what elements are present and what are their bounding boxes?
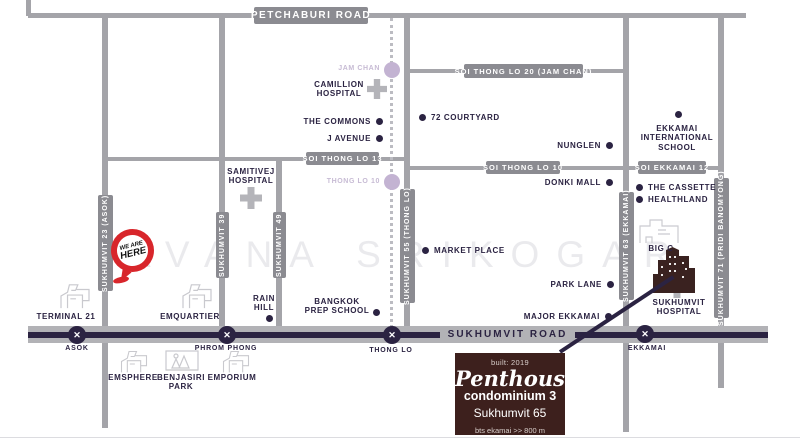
landmark-label: THE CASSETTE [648, 183, 716, 192]
landmark-donki-mall: DONKI MALL [545, 178, 613, 187]
road-label-sukhumvit-55: SUKHUMVIT 55 (THONG LO) [400, 189, 415, 303]
we-are-here-marker: WE ARE HERE [107, 227, 159, 287]
landmark-samitivej-hospital: SAMITIVEJ HOSPITAL [212, 167, 290, 186]
info-project-type: condominium 3 [455, 390, 565, 403]
landmark-label: MARKET PLACE [434, 246, 505, 255]
landmark-emsphere: EMSPHERE [104, 373, 162, 382]
park-icon-benjasiri [165, 350, 199, 374]
hospital-cross-icon [240, 187, 262, 209]
info-box: built: 2019 Penthouse condominium 3 Sukh… [455, 353, 565, 435]
landmark-dot [422, 247, 429, 254]
map-canvas: AVANA SRIKOGAR PETCHABURI ROAD SOI THONG… [0, 0, 800, 443]
landmark-camillion-hospital: CAMILLION HOSPITAL [301, 80, 377, 99]
landmark-label: 72 COURTYARD [431, 113, 500, 122]
landmark-label: J AVENUE [327, 134, 371, 143]
landmark-dot [607, 281, 614, 288]
landmark-big-c: BIG C [640, 244, 682, 253]
landmark-label: PARK LANE [551, 280, 602, 289]
landmark-dot [373, 309, 380, 316]
info-address: Sukhumvit 65 [455, 407, 565, 419]
landmark-dot [636, 196, 643, 203]
landmark-nunglen: NUNGLEN [557, 141, 613, 150]
landmark-major-ekkamai: MAJOR EKKAMAI [524, 312, 612, 321]
bts-icon: ✕ [388, 330, 396, 341]
landmark-emquartier: EMQUARTIER [150, 312, 230, 321]
bts-station-label-phrom-phong: PHROM PHONG [190, 345, 262, 352]
road-label-sukhumvit-71: SUKHUMVIT 71 (PRIDI BANOMYONG) [714, 178, 729, 318]
building-icon-terminal-21 [56, 282, 94, 310]
road-petchaburi [28, 13, 746, 18]
building-icon-emsphere [117, 349, 151, 374]
landmark-dot [376, 118, 383, 125]
landmark-label: MAJOR EKKAMAI [524, 312, 600, 321]
info-project-name: Penthouse [455, 368, 565, 389]
landmark-dot [376, 135, 383, 142]
landmark-dot [419, 114, 426, 121]
road-label-petchaburi: PETCHABURI ROAD [254, 7, 368, 24]
bts-station-asok: ✕ [68, 326, 86, 344]
landmark-terminal-21: TERMINAL 21 [26, 312, 106, 321]
bts-station-phrom-phong: ✕ [218, 326, 236, 344]
road-sukhumvit-71-south [718, 343, 724, 388]
landmark-dot [266, 315, 273, 322]
landmark-the-cassette: THE CASSETTE [636, 183, 716, 192]
road-label-soi-ekkamai-12: SOI EKKAMAI 12 [638, 161, 706, 174]
pin-shadow [113, 275, 130, 284]
info-bts-distance: bts ekamai >> 800 m [455, 426, 565, 435]
landmark-dot [606, 179, 613, 186]
bts-station-label-thong-lo: THONG LO [361, 347, 421, 354]
landmark-label: THE COMMONS [304, 117, 372, 126]
landmark-j-avenue: J AVENUE [327, 134, 383, 143]
bts-icon: ✕ [223, 330, 231, 341]
bts-station-thong-lo: ✕ [383, 326, 401, 344]
landmark-dot [675, 111, 682, 118]
landmark-dot [636, 184, 643, 191]
landmark-healthland: HEALTHLAND [636, 195, 708, 204]
landmark-label: NUNGLEN [557, 141, 601, 150]
landmark-bangkok-prep-school: BANGKOK PREP SCHOOL [301, 297, 373, 316]
landmark-emporium: EMPORIUM [203, 373, 261, 382]
road-label-sukhumvit-39: SUKHUMVIT 39 [216, 212, 229, 278]
building-icon-emporium [219, 349, 253, 374]
road-label-soi-thong-lo-13: SOI THONG LO 13 [306, 152, 379, 165]
bts-station-ekkamai: ✕ [636, 325, 654, 343]
grey-line-station-label-thong-lo-10: THONG LO 10 [327, 178, 380, 185]
building-icon-emquartier [178, 282, 216, 310]
landmark-dot [606, 142, 613, 149]
landmark-park-lane: PARK LANE [551, 280, 614, 289]
landmark-dot [605, 313, 612, 320]
grey-line-station-jam-chan [384, 62, 400, 78]
landmark-the-commons: THE COMMONS [304, 117, 384, 126]
grey-line-station-thong-lo-10 [384, 174, 400, 190]
road-label-soi-thong-lo-20: SOI THONG LO 20 (JAM CHAN) [464, 64, 583, 78]
sukhumvit-road-label: SUKHUMVIT ROAD [440, 327, 575, 342]
bts-icon: ✕ [641, 329, 649, 340]
bottom-border [0, 437, 800, 438]
landmark-benjasiri-park: BENJASIRI PARK [156, 373, 206, 392]
landmark-sukhumvit-hospital: SUKHUMVIT HOSPITAL [641, 298, 717, 317]
road-label-sukhumvit-49: SUKHUMVIT 49 [273, 212, 286, 278]
bts-icon: ✕ [73, 330, 81, 341]
grey-line-station-label-jam-chan: JAM CHAN [338, 65, 380, 72]
landmark-ekkamai-international-school: EKKAMAI INTERNATIONAL SCHOOL [627, 124, 727, 152]
landmark-label: DONKI MALL [545, 178, 601, 187]
landmark-rain-hill: RAIN HILL [241, 294, 287, 313]
landmark-market-place: MARKET PLACE [422, 246, 505, 255]
bts-station-label-asok: ASOK [47, 345, 107, 352]
big-c-building-icon [638, 216, 680, 244]
landmark-72-courtyard: 72 COURTYARD [419, 113, 500, 122]
road-label-sukhumvit-63: SUKHUMVIT 63 (EKKAMAI) [619, 192, 634, 300]
road-label-soi-thong-lo-10: SOI THONG LO 10 [486, 161, 560, 174]
bts-station-label-ekkamai: EKKAMAI [616, 345, 678, 352]
landmark-label: HEALTHLAND [648, 195, 708, 204]
